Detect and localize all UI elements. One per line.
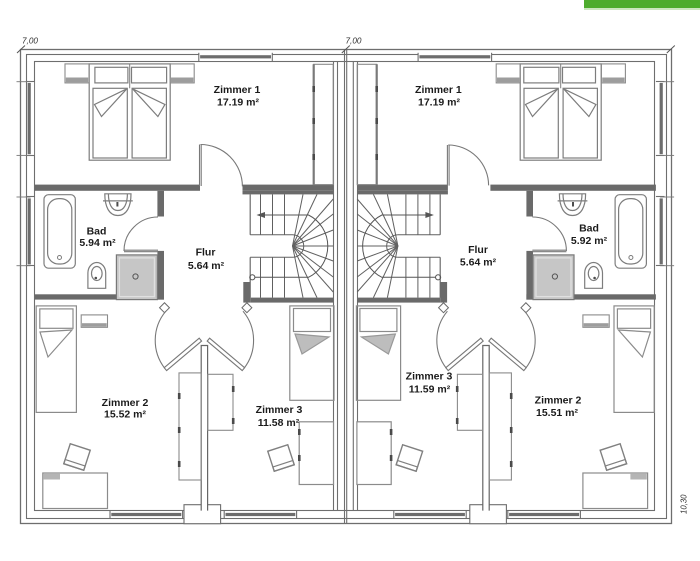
svg-text:17.19 m²: 17.19 m² [217, 97, 260, 109]
svg-text:Zimmer 3: Zimmer 3 [256, 404, 303, 416]
svg-text:15.52 m²: 15.52 m² [104, 409, 147, 421]
svg-text:Zimmer 1: Zimmer 1 [415, 84, 462, 96]
svg-text:15.51 m²: 15.51 m² [536, 407, 579, 419]
svg-text:5.64 m²: 5.64 m² [188, 260, 225, 272]
svg-text:11.58 m²: 11.58 m² [258, 417, 300, 429]
svg-text:Zimmer 2: Zimmer 2 [102, 397, 149, 409]
svg-text:Zimmer 1: Zimmer 1 [214, 84, 261, 96]
svg-text:Flur: Flur [468, 244, 488, 256]
svg-text:Bad: Bad [87, 226, 107, 238]
svg-text:11.59 m²: 11.59 m² [409, 384, 451, 396]
svg-text:Flur: Flur [196, 247, 216, 259]
svg-text:Zimmer 2: Zimmer 2 [535, 395, 582, 407]
svg-text:Zimmer 3: Zimmer 3 [406, 371, 453, 383]
svg-text:17.19 m²: 17.19 m² [418, 97, 461, 109]
svg-text:7,00: 7,00 [346, 37, 362, 46]
svg-text:7,00: 7,00 [22, 37, 38, 46]
svg-text:5.94 m²: 5.94 m² [79, 237, 116, 249]
svg-text:10,30: 10,30 [680, 494, 689, 514]
svg-text:5.64 m²: 5.64 m² [460, 257, 497, 269]
svg-text:Bad: Bad [579, 223, 599, 235]
svg-text:5.92 m²: 5.92 m² [571, 235, 608, 247]
